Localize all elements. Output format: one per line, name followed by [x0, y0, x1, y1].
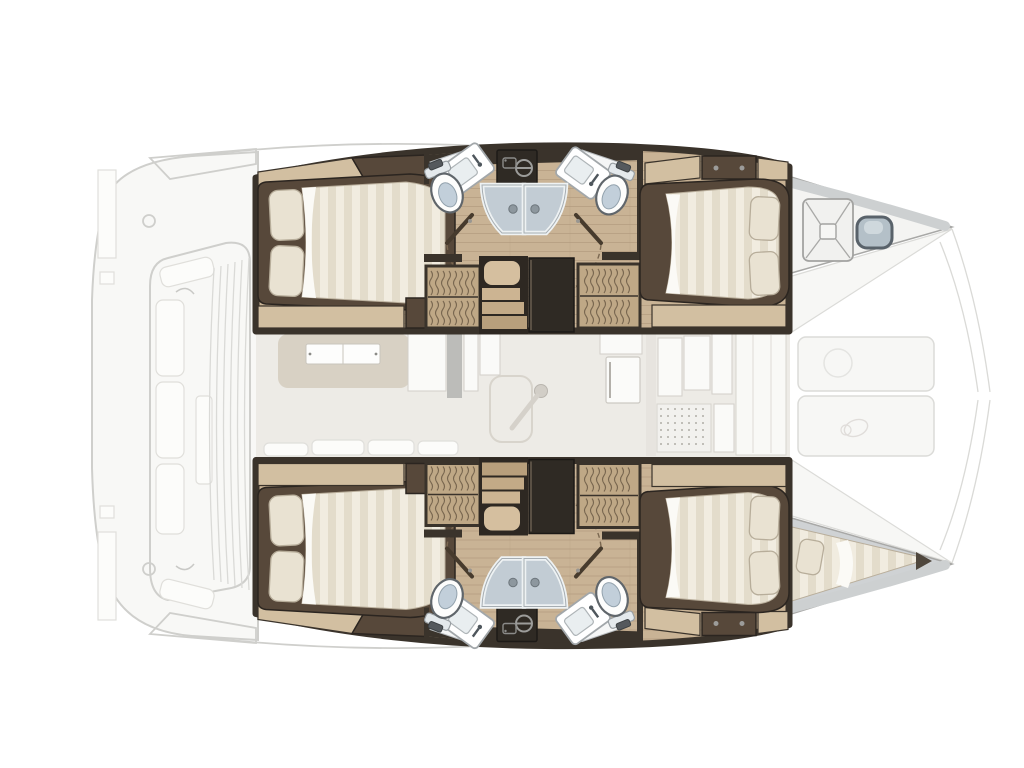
forward-deck-ghost: [792, 229, 952, 563]
counter-wood: [758, 158, 788, 180]
stair-step: [482, 288, 520, 300]
bow-stay: [940, 400, 978, 550]
foredeck-seat-pad: [798, 337, 934, 391]
aft-cabin-shelf: [258, 306, 404, 328]
bench-cushion: [156, 300, 184, 376]
galley-fridge: [606, 357, 640, 403]
door-handle: [576, 219, 580, 223]
bed-pillow: [269, 189, 305, 241]
catamaran-floorplan-canvas: [0, 0, 1024, 768]
saloon-cabinet: [464, 333, 478, 391]
floor-grate-dots: [659, 406, 709, 450]
transom-cleat: [100, 272, 114, 284]
transom-step: [98, 170, 116, 258]
sofa-cushion: [264, 443, 308, 456]
saloon-cabinet: [480, 333, 500, 375]
berth-pillow: [795, 538, 825, 576]
shower-door-handle: [531, 205, 539, 213]
stair-step: [482, 316, 527, 329]
transom-cleat: [100, 506, 114, 518]
table-dot: [375, 353, 378, 356]
bow-fitting-highlight: [864, 221, 883, 234]
transom-step: [98, 532, 116, 620]
sofa-cushion: [312, 440, 364, 455]
fwd-cabin-shelf: [652, 305, 786, 327]
door-handle: [468, 219, 472, 223]
upper-hull: [256, 142, 789, 334]
hatch-center: [820, 224, 836, 239]
aft-cockpit-ghost: [92, 149, 258, 643]
foredeck-seat-pad: [798, 396, 934, 456]
bed-pillow: [749, 196, 780, 240]
saloon-cabinet: [408, 333, 446, 391]
shower-door-handle: [509, 205, 517, 213]
galley-counter: [714, 404, 734, 452]
lower-hull: [256, 458, 789, 650]
galley-upper-unit: [600, 332, 642, 354]
table-dot: [309, 353, 312, 356]
bow-stay: [940, 242, 978, 392]
galley-counter: [712, 334, 732, 394]
stair-step: [482, 302, 524, 314]
galley-tall-unit: [736, 333, 786, 455]
bench-cushion: [156, 464, 184, 534]
sofa-cushion: [418, 441, 458, 455]
saloon-bridgedeck: [256, 330, 790, 462]
galley-counter: [684, 336, 710, 390]
bed-pillow: [749, 251, 780, 295]
galley-walkway: [646, 332, 656, 456]
tall-dark-locker: [529, 258, 574, 332]
dark-cabinet: [497, 150, 537, 186]
bench-cushion: [156, 382, 184, 458]
aft-bed-mattress: [302, 182, 445, 303]
sofa-cushion: [368, 440, 414, 455]
stair-landing: [484, 261, 520, 285]
partition-wall: [424, 254, 462, 262]
partition-wall: [602, 252, 644, 260]
saloon-cabinet-door: [447, 332, 462, 398]
floorplan-svg: [0, 0, 1024, 768]
counter-knob: [714, 166, 719, 171]
counter-knob: [740, 166, 745, 171]
galley-counter: [658, 338, 682, 396]
bow-stay: [952, 229, 990, 392]
bed-pillow: [269, 245, 305, 297]
bow-stay: [952, 400, 990, 563]
galley-counter-dark: [702, 156, 756, 179]
